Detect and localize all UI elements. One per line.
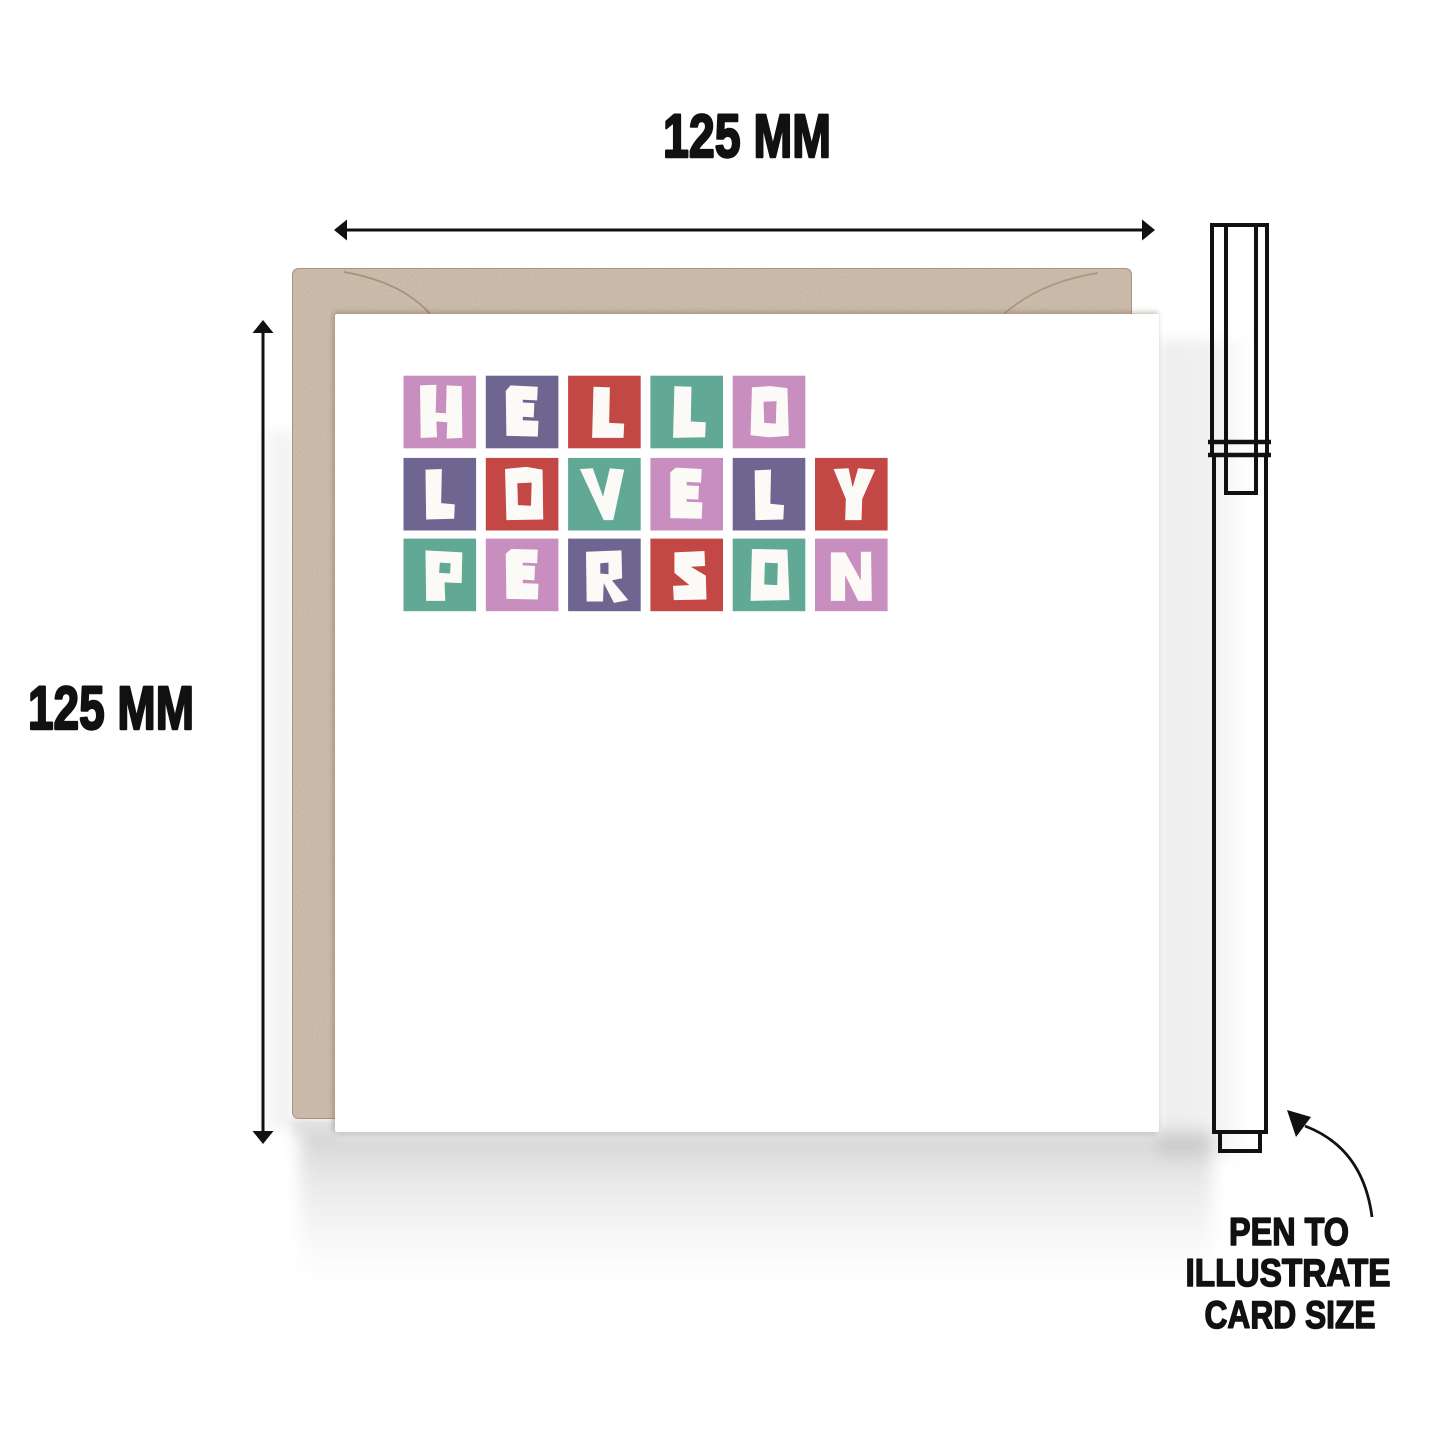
svg-text:ILLUSTRATE: ILLUSTRATE [1186,1252,1391,1295]
svg-text:125 MM: 125 MM [663,102,831,170]
svg-text:PEN TO: PEN TO [1229,1211,1349,1254]
svg-text:125 MM: 125 MM [28,674,194,742]
svg-text:CARD SIZE: CARD SIZE [1205,1294,1376,1337]
